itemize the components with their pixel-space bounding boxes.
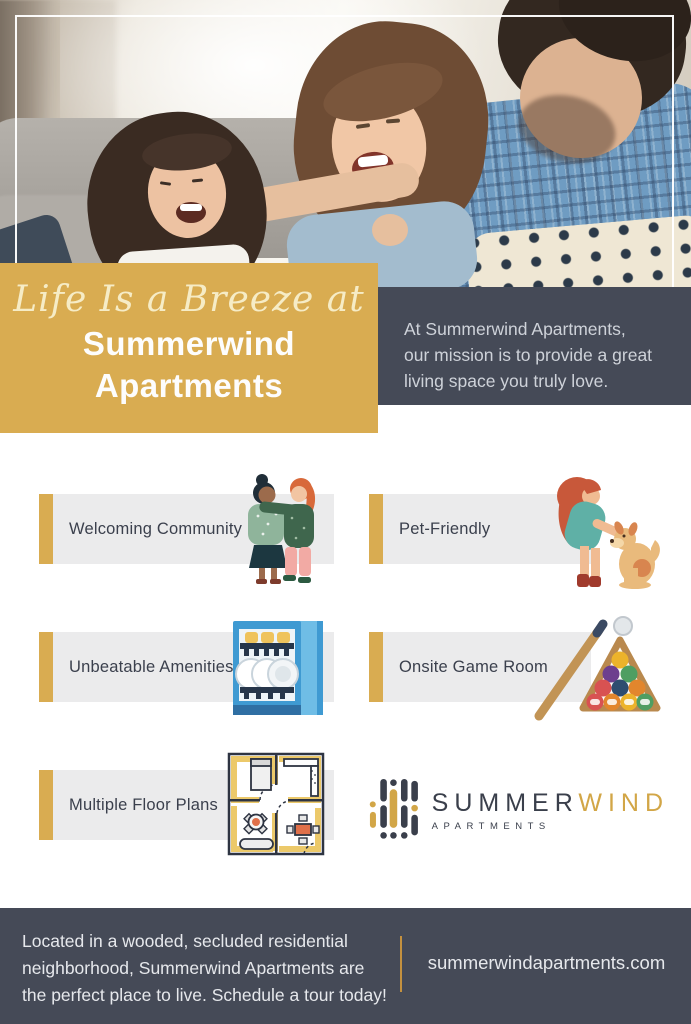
logo-subtitle: APARTMENTS xyxy=(432,821,669,832)
logo-wordmark: SUMMERWIND xyxy=(432,789,669,818)
gold-accent-bar xyxy=(369,494,383,564)
logo-word-summer: SUMMER xyxy=(432,789,579,817)
feature-label: Pet-Friendly xyxy=(399,520,490,539)
mission-block: At Summerwind Apartments, our mission is… xyxy=(378,287,691,405)
billiards-illustration xyxy=(523,612,663,724)
footer-message-line: neighborhood, Summerwind Apartments are xyxy=(22,955,397,982)
mission-line: our mission is to provide a great xyxy=(404,342,691,368)
feature-label: Multiple Floor Plans xyxy=(69,796,218,815)
feature-label: Unbeatable Amenities xyxy=(69,658,234,677)
footer-message-line: the perfect place to live. Schedule a to… xyxy=(22,982,397,1009)
footer-message-line: Located in a wooded, secluded residentia… xyxy=(22,928,397,955)
gold-accent-bar xyxy=(39,632,53,702)
headline-block: Life Is a Breeze at Summerwind Apartment… xyxy=(0,263,378,433)
footer: Located in a wooded, secluded residentia… xyxy=(0,908,691,1024)
floorplan-illustration xyxy=(226,751,326,857)
mission-line: At Summerwind Apartments, xyxy=(404,316,691,342)
page-title-line1: Summerwind xyxy=(0,323,378,365)
summerwind-logo: SUMMERWIND APARTMENTS xyxy=(369,772,669,848)
gold-accent-bar xyxy=(39,494,53,564)
feature-label: Welcoming Community xyxy=(69,520,242,539)
community-illustration xyxy=(238,468,326,588)
page-title-line2: Apartments xyxy=(0,365,378,407)
logo-word-wind: WIND xyxy=(578,789,669,817)
dishwasher-illustration xyxy=(229,619,325,717)
flyer-page: Life Is a Breeze at Summerwind Apartment… xyxy=(0,0,691,1024)
gold-accent-bar xyxy=(39,770,53,840)
pet-illustration xyxy=(525,466,663,590)
mission-line: living space you truly love. xyxy=(404,368,691,394)
logo-mark-icon xyxy=(369,775,422,845)
website-link[interactable]: summerwindapartments.com xyxy=(402,952,691,974)
gold-accent-bar xyxy=(369,632,383,702)
tagline-script: Life Is a Breeze at xyxy=(0,277,378,323)
